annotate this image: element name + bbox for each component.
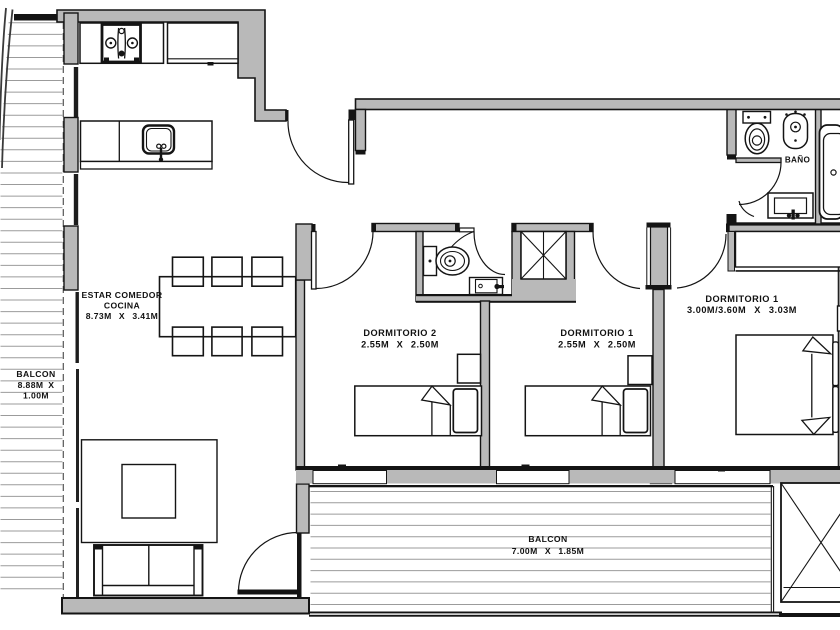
svg-text:2.55M X 2.50M: 2.55M X 2.50M	[558, 340, 636, 350]
svg-text:BALCON: BALCON	[528, 534, 567, 544]
svg-text:BALCON: BALCON	[16, 369, 55, 379]
svg-text:7.00M X 1.85M: 7.00M X 1.85M	[512, 546, 584, 556]
svg-text:2.55M X 2.50M: 2.55M X 2.50M	[361, 340, 439, 350]
svg-text:DORMITORIO 1: DORMITORIO 1	[705, 294, 778, 304]
svg-text:COCINA: COCINA	[104, 301, 140, 311]
svg-text:DORMITORIO 2: DORMITORIO 2	[363, 328, 436, 338]
svg-text:8.73M X 3.41M: 8.73M X 3.41M	[86, 311, 158, 321]
svg-text:BAÑO: BAÑO	[785, 155, 811, 165]
svg-text:3.00M/3.60M X 3.03M: 3.00M/3.60M X 3.03M	[687, 305, 797, 315]
svg-text:1.00M: 1.00M	[23, 391, 49, 401]
svg-text:ESTAR COMEDOR: ESTAR COMEDOR	[82, 290, 163, 300]
svg-text:DORMITORIO 1: DORMITORIO 1	[560, 328, 633, 338]
svg-text:8.88M X: 8.88M X	[18, 380, 55, 390]
